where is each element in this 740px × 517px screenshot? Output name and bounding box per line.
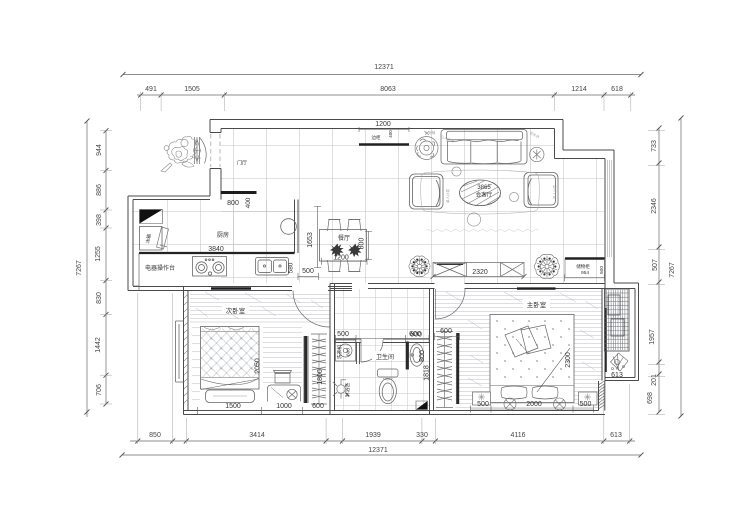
- svg-text:400: 400: [245, 197, 252, 208]
- svg-text:500: 500: [599, 266, 605, 274]
- svg-text:954: 954: [581, 270, 589, 276]
- svg-text:1505: 1505: [184, 86, 200, 93]
- svg-text:休闲椅: 休闲椅: [425, 130, 436, 135]
- svg-text:580: 580: [288, 262, 295, 273]
- svg-text:门厅: 门厅: [237, 160, 247, 167]
- svg-text:613: 613: [611, 372, 623, 379]
- svg-text:洗衣机: 洗衣机: [336, 345, 343, 360]
- svg-text:850: 850: [149, 432, 161, 439]
- svg-text:电器操作台: 电器操作台: [145, 264, 175, 272]
- svg-text:12371: 12371: [374, 64, 394, 71]
- svg-text:886: 886: [96, 184, 103, 196]
- svg-text:1500: 1500: [225, 403, 241, 410]
- svg-text:1214: 1214: [571, 86, 587, 93]
- svg-text:800: 800: [419, 350, 426, 362]
- svg-text:1957: 1957: [649, 329, 656, 345]
- svg-text:储物柜: 储物柜: [576, 263, 590, 270]
- svg-text:1200: 1200: [375, 121, 391, 128]
- svg-text:500: 500: [580, 401, 592, 408]
- svg-text:600: 600: [410, 332, 422, 339]
- svg-text:3865: 3865: [477, 185, 491, 191]
- svg-text:3840: 3840: [208, 246, 224, 253]
- svg-text:698: 698: [647, 392, 654, 404]
- svg-text:次卧室: 次卧室: [226, 306, 246, 315]
- svg-text:2000: 2000: [526, 401, 542, 408]
- svg-text:12371: 12371: [368, 447, 388, 454]
- svg-text:2320: 2320: [472, 269, 488, 276]
- svg-text:706: 706: [96, 384, 103, 396]
- svg-text:1000: 1000: [276, 403, 292, 410]
- svg-text:淋浴区: 淋浴区: [344, 383, 351, 398]
- svg-text:507: 507: [652, 259, 659, 271]
- svg-text:卫生间: 卫生间: [376, 353, 394, 361]
- svg-text:733: 733: [651, 140, 658, 152]
- svg-text:800: 800: [359, 238, 366, 250]
- svg-text:会客厅: 会客厅: [476, 191, 493, 199]
- svg-text:400: 400: [388, 130, 393, 138]
- svg-text:单人沙发: 单人沙发: [552, 185, 557, 199]
- svg-text:800: 800: [227, 200, 239, 207]
- svg-text:500: 500: [337, 331, 349, 338]
- svg-text:4116: 4116: [510, 432, 525, 439]
- svg-text:边柜: 边柜: [372, 134, 381, 141]
- svg-text:3414: 3414: [249, 432, 265, 439]
- svg-text:398: 398: [96, 214, 103, 226]
- svg-text:2050: 2050: [255, 358, 262, 374]
- svg-text:944: 944: [96, 144, 103, 156]
- svg-text:主卧室: 主卧室: [527, 300, 547, 309]
- svg-text:7267: 7267: [76, 260, 83, 276]
- svg-text:1818: 1818: [424, 365, 431, 381]
- svg-text:1442: 1442: [95, 337, 102, 353]
- svg-text:491: 491: [145, 86, 157, 93]
- svg-text:餐厅: 餐厅: [338, 234, 350, 242]
- svg-text:600: 600: [440, 328, 452, 335]
- svg-text:8063: 8063: [380, 86, 396, 93]
- svg-text:830: 830: [96, 292, 103, 304]
- svg-text:500: 500: [302, 268, 314, 275]
- svg-text:1255: 1255: [95, 246, 102, 262]
- svg-text:1200: 1200: [333, 255, 349, 262]
- svg-text:1800: 1800: [317, 369, 324, 385]
- svg-text:厨房: 厨房: [217, 231, 229, 239]
- svg-text:1653: 1653: [307, 232, 314, 248]
- svg-text:单人沙发: 单人沙发: [445, 189, 450, 203]
- svg-text:2300: 2300: [565, 352, 572, 368]
- svg-text:600: 600: [346, 348, 352, 356]
- svg-text:613: 613: [610, 432, 622, 439]
- svg-text:2346: 2346: [651, 198, 658, 214]
- svg-text:1939: 1939: [365, 432, 381, 439]
- svg-text:600: 600: [312, 403, 324, 410]
- svg-text:618: 618: [611, 86, 623, 93]
- svg-text:7267: 7267: [669, 262, 676, 278]
- svg-text:500: 500: [477, 401, 489, 408]
